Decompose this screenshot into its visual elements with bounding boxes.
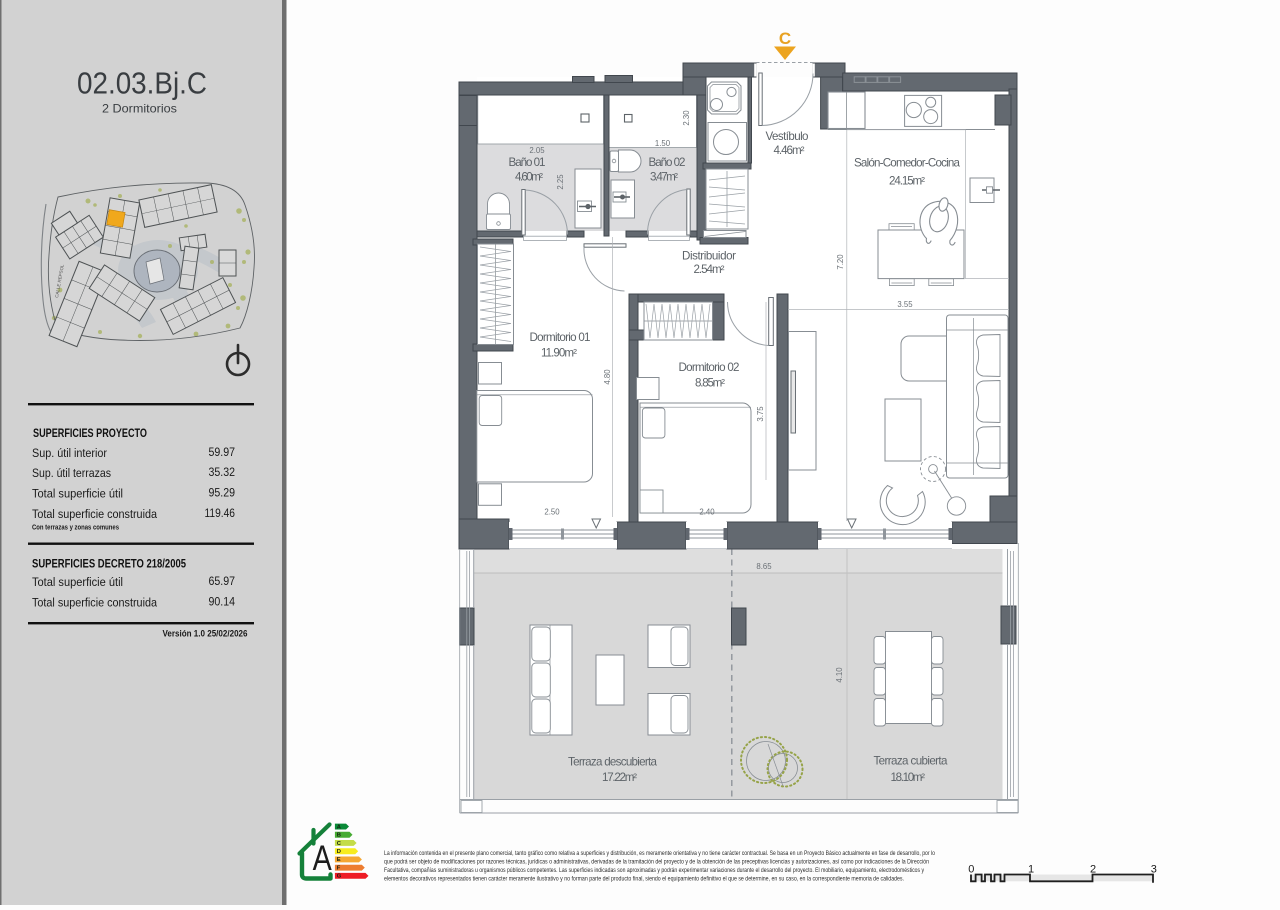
svg-text:2 Dormitorios: 2 Dormitorios — [102, 102, 177, 116]
svg-text:65.97: 65.97 — [209, 574, 236, 588]
svg-text:D: D — [337, 849, 341, 855]
svg-text:0: 0 — [968, 863, 974, 875]
svg-text:3: 3 — [1151, 863, 1157, 875]
svg-text:Dormitorio 02: Dormitorio 02 — [679, 361, 740, 374]
svg-text:Vestíbulo: Vestíbulo — [766, 130, 809, 143]
svg-text:2.30: 2.30 — [682, 110, 691, 126]
svg-text:2.54m²: 2.54m² — [694, 263, 725, 276]
svg-text:02.03.Bj.C: 02.03.Bj.C — [77, 66, 207, 101]
svg-text:2.25: 2.25 — [556, 174, 565, 190]
svg-text:18.10m²: 18.10m² — [891, 771, 926, 784]
svg-text:Total superficie útil: Total superficie útil — [32, 575, 123, 589]
svg-text:Terraza descubierta: Terraza descubierta — [568, 756, 658, 769]
svg-text:SUPERFICIES PROYECTO: SUPERFICIES PROYECTO — [33, 428, 147, 440]
svg-text:Dormitorio 01: Dormitorio 01 — [530, 331, 591, 344]
svg-text:1.50: 1.50 — [655, 139, 671, 148]
svg-text:11.90m²: 11.90m² — [541, 347, 577, 360]
svg-text:4.80: 4.80 — [603, 369, 612, 385]
svg-text:3.47m²: 3.47m² — [650, 171, 678, 184]
svg-text:2.50: 2.50 — [544, 508, 560, 517]
svg-text:C: C — [779, 29, 791, 48]
svg-text:35.32: 35.32 — [209, 465, 236, 479]
svg-text:90.14: 90.14 — [209, 595, 236, 609]
svg-text:Versión 1.0 25/02/2026: Versión 1.0 25/02/2026 — [163, 629, 248, 639]
svg-text:G: G — [337, 874, 342, 880]
svg-text:24.15m²: 24.15m² — [889, 175, 925, 188]
svg-text:7.20: 7.20 — [836, 254, 845, 270]
svg-text:Distribuidor: Distribuidor — [682, 250, 736, 263]
svg-text:Con terrazas y zonas comunes: Con terrazas y zonas comunes — [32, 523, 119, 532]
svg-text:17.22m²: 17.22m² — [602, 771, 637, 784]
svg-text:La información contenida en el: La información contenida en el presente … — [384, 850, 936, 857]
svg-text:2.05: 2.05 — [529, 146, 545, 155]
svg-text:4.46m²: 4.46m² — [774, 144, 805, 157]
svg-text:59.97: 59.97 — [209, 445, 236, 459]
svg-text:1: 1 — [1028, 863, 1034, 875]
svg-text:Total superficie construida: Total superficie construida — [32, 507, 157, 521]
svg-text:E: E — [337, 857, 341, 863]
svg-text:3.55: 3.55 — [897, 300, 913, 309]
svg-text:SUPERFICIES DECRETO 218/2005: SUPERFICIES DECRETO 218/2005 — [32, 559, 186, 571]
svg-text:2.40: 2.40 — [699, 508, 715, 517]
svg-text:8.85m²: 8.85m² — [695, 377, 725, 390]
svg-text:elementos decorativos represen: elementos decorativos representados tien… — [384, 876, 904, 883]
svg-text:3.75: 3.75 — [756, 406, 765, 422]
svg-text:Terraza cubierta: Terraza cubierta — [874, 755, 949, 768]
svg-text:4.10: 4.10 — [835, 667, 844, 683]
svg-text:2: 2 — [1090, 863, 1096, 875]
svg-text:B: B — [337, 833, 341, 839]
svg-text:que podrá ser objeto de modifi: que podrá ser objeto de modificaciones p… — [384, 858, 929, 865]
svg-text:Baño 02: Baño 02 — [649, 156, 686, 169]
svg-text:Total superficie útil: Total superficie útil — [32, 487, 123, 501]
svg-text:Total superficie construida: Total superficie construida — [32, 596, 157, 610]
svg-text:Sup. útil terrazas: Sup. útil terrazas — [32, 466, 111, 480]
svg-text:4.60m²: 4.60m² — [515, 171, 543, 184]
svg-text:95.29: 95.29 — [209, 486, 236, 500]
svg-text:F: F — [337, 865, 341, 871]
svg-text:A: A — [313, 838, 333, 877]
svg-text:Facultativa, compañías suminis: Facultativa, compañías suministradoras u… — [384, 867, 925, 874]
svg-text:Sup. útil interior: Sup. útil interior — [32, 446, 107, 460]
svg-text:Baño 01: Baño 01 — [509, 156, 546, 169]
svg-text:119.46: 119.46 — [205, 506, 236, 520]
svg-text:Salón-Comedor-Cocina: Salón-Comedor-Cocina — [854, 157, 961, 170]
svg-text:8.65: 8.65 — [756, 562, 772, 571]
